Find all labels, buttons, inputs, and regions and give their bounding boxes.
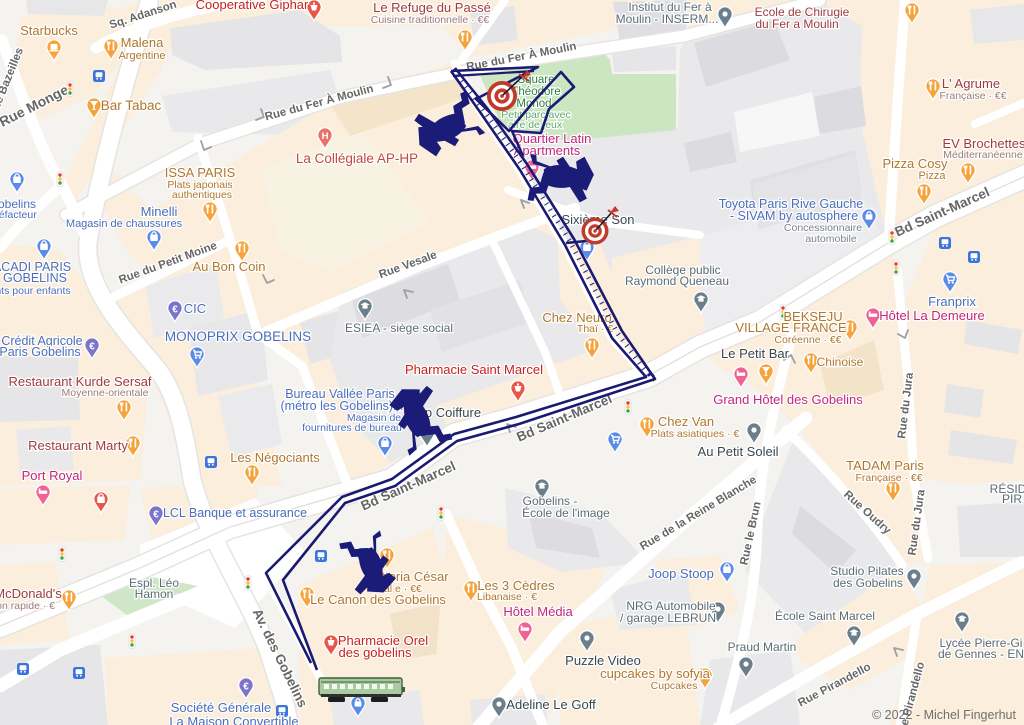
svg-text:Raymond Queneau: Raymond Queneau <box>625 274 729 288</box>
svg-text:GOBELINS: GOBELINS <box>3 271 67 285</box>
svg-text:du Fer a Moulin: du Fer a Moulin <box>755 17 838 31</box>
svg-text:Plats asiatiques · €: Plats asiatiques · € <box>651 428 740 440</box>
svg-text:H: H <box>322 131 329 142</box>
svg-text:Les Négociants: Les Négociants <box>230 450 320 465</box>
svg-text:Joop Stoop: Joop Stoop <box>648 566 714 581</box>
svg-text:Hôtel Média: Hôtel Média <box>503 604 573 619</box>
svg-text:Française · €€: Française · €€ <box>939 90 1006 102</box>
svg-text:Coréenne · €€: Coréenne · €€ <box>774 334 841 346</box>
svg-text:MONOPRIX GOBELINS: MONOPRIX GOBELINS <box>165 329 311 344</box>
svg-text:Au Bon Coin: Au Bon Coin <box>193 259 266 274</box>
svg-text:Chez Van: Chez Van <box>658 414 714 429</box>
svg-text:Méditerranéenne: Méditerranéenne <box>943 149 1023 161</box>
svg-text:Adeline Le Goff: Adeline Le Goff <box>506 697 596 712</box>
svg-text:authentiques: authentiques <box>172 189 232 201</box>
svg-text:Pizza Cosy: Pizza Cosy <box>882 156 948 171</box>
svg-text:Au Petit Soleil: Au Petit Soleil <box>698 444 779 459</box>
svg-text:Magasin de chaussures: Magasin de chaussures <box>66 218 183 230</box>
svg-text:Société Générale: Société Générale <box>171 700 271 715</box>
svg-text:Le Refuge du Passé: Le Refuge du Passé <box>373 0 491 15</box>
svg-text:Libanaise · €: Libanaise · € <box>477 591 537 603</box>
svg-text:Chinoise: Chinoise <box>817 355 864 369</box>
svg-text:(métro les Gobelins)...: (métro les Gobelins)... <box>281 399 404 413</box>
svg-text:Franprix: Franprix <box>928 294 976 309</box>
svg-text:des gobelins: des gobelins <box>339 645 412 660</box>
svg-text:Port Royal: Port Royal <box>22 468 83 483</box>
svg-text:La Maison Convertible: La Maison Convertible <box>169 714 298 725</box>
svg-text:nts pour enfants: nts pour enfants <box>0 285 71 297</box>
svg-text:Restaurant Marty: Restaurant Marty <box>28 438 128 453</box>
svg-text:VILLAGE FRANCE: VILLAGE FRANCE <box>735 320 847 335</box>
svg-text:Malena: Malena <box>121 35 164 50</box>
svg-text:Pharmacie Saint Marcel: Pharmacie Saint Marcel <box>405 362 543 377</box>
svg-text:Hôtel La Demeure: Hôtel La Demeure <box>879 308 985 323</box>
svg-text:Théodore: Théodore <box>511 86 560 98</box>
svg-text:McDonald's: McDonald's <box>0 586 62 601</box>
svg-text:Française · €€: Française · €€ <box>855 472 922 484</box>
svg-text:automobile: automobile <box>805 233 857 245</box>
svg-text:Pizza: Pizza <box>919 170 947 182</box>
svg-text:PIR: PIR <box>1002 492 1022 506</box>
svg-text:Paris Gobelins: Paris Gobelins <box>0 345 81 359</box>
svg-text:La Collégiale AP-HP: La Collégiale AP-HP <box>296 151 418 166</box>
svg-text:Starbucks: Starbucks <box>20 23 78 38</box>
svg-text:ISSA PARIS: ISSA PARIS <box>165 165 236 180</box>
svg-text:fournitures de bureau: fournitures de bureau <box>302 422 402 434</box>
svg-text:de Gennes - EN: de Gennes - EN <box>938 647 1024 661</box>
svg-text:Argentine: Argentine <box>118 50 165 62</box>
svg-text:des Gobelins: des Gobelins <box>833 576 903 590</box>
svg-text:LCL Banque et assurance: LCL Banque et assurance <box>163 506 307 520</box>
svg-text:École de l'image: École de l'image <box>522 505 610 520</box>
svg-text:tion rapide · €: tion rapide · € <box>0 600 55 612</box>
svg-text:Bar Tabac: Bar Tabac <box>101 98 162 113</box>
svg-text:École Saint Marcel: École Saint Marcel <box>775 608 875 623</box>
svg-text:cupcakes by sofyia: cupcakes by sofyia <box>600 666 711 681</box>
svg-text:Minelli: Minelli <box>141 204 178 219</box>
svg-text:Moyenne-orientale: Moyenne-orientale <box>62 387 149 399</box>
svg-text:Cupcakes: Cupcakes <box>651 680 698 692</box>
svg-text:L' Agrume: L' Agrume <box>942 76 1000 91</box>
svg-text:CIC: CIC <box>184 301 206 316</box>
svg-text:p Coiffure: p Coiffure <box>425 405 481 420</box>
svg-text:ESIEA - siège social: ESIEA - siège social <box>345 321 453 335</box>
svg-text:Grand Hôtel des Gobelins: Grand Hôtel des Gobelins <box>713 392 863 407</box>
svg-text:Hamon: Hamon <box>135 587 174 601</box>
svg-text:/ garage LEBRUN: / garage LEBRUN <box>620 611 716 625</box>
svg-text:Le Canon des Gobelins: Le Canon des Gobelins <box>310 592 446 607</box>
svg-text:Cuisine traditionnelle · €€: Cuisine traditionnelle · €€ <box>371 14 490 26</box>
svg-text:Cooperative Giphar: Cooperative Giphar <box>196 0 309 12</box>
svg-text:Le Petit Bar: Le Petit Bar <box>721 346 790 361</box>
svg-text:- SIVAM by autosphere: - SIVAM by autosphere <box>730 209 858 223</box>
svg-text:Apartments: Apartments <box>514 143 581 158</box>
svg-text:réfacteur: réfacteur <box>0 209 37 221</box>
svg-text:Praud Martin: Praud Martin <box>728 640 797 654</box>
svg-text:Moulin - INSERM...: Moulin - INSERM... <box>616 12 719 26</box>
svg-text:TADAM Paris: TADAM Paris <box>846 458 924 473</box>
svg-text:© 2022 - Michel Fingerhut: © 2022 - Michel Fingerhut <box>872 708 1017 722</box>
